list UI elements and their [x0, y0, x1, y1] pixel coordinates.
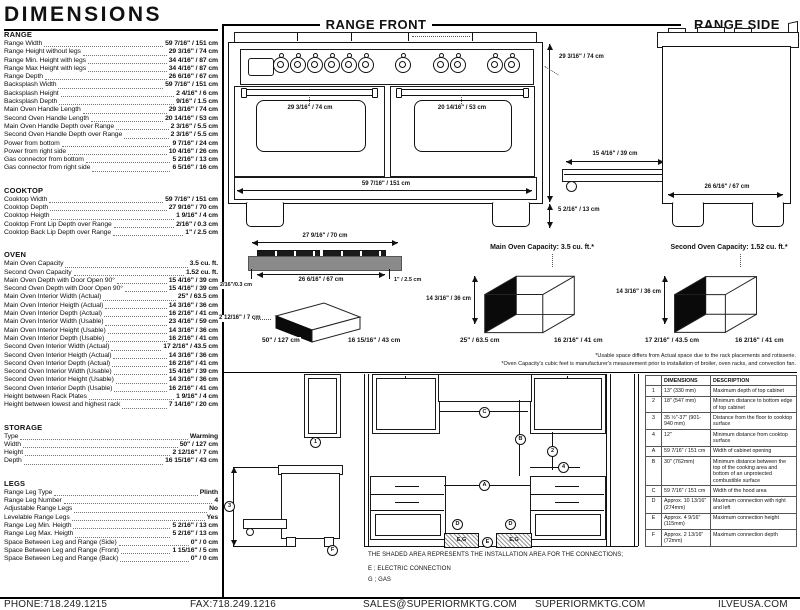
spec-rows: Type Warming Width 50" / 127 cm Height 2… [4, 433, 218, 466]
spec-value: 34 4/16" / 87 cm [169, 57, 218, 65]
second-capacity-height-dim: 14 3/16" / 36 cm [610, 289, 662, 296]
spec-value: Yes [207, 514, 218, 522]
callout-d: D [505, 519, 516, 530]
cooktop-slab [248, 256, 402, 271]
wall-line [368, 374, 369, 546]
spec-row: Range Width 59 7/16" / 151 cm [4, 40, 218, 48]
dimensions-sheet: DIMENSIONS RANGE Range Width 59 7/16" / … [0, 0, 800, 610]
row-dimension: 12" [662, 430, 711, 447]
drawer-width-dim: 50" / 127 cm [261, 337, 301, 344]
spec-row: Range Max Height with legs 34 4/16" / 87… [4, 65, 218, 73]
row-description: Minimum distance between the top of the … [711, 457, 797, 486]
row-ref: A [646, 446, 662, 456]
range-leg [752, 202, 784, 227]
spec-label: Range Leg Type [4, 489, 52, 497]
spec-row: Main Oven Interior Heigth (Actual) 14 3/… [4, 302, 218, 310]
row-description: Maximum connection depth [711, 530, 797, 547]
dotted-leader [23, 447, 178, 448]
spec-label: Main Oven Interior Height (Usable) [4, 327, 106, 335]
dotted-leader [106, 341, 167, 342]
spec-label: Main Oven Interior Depth (Usable) [4, 335, 104, 343]
spec-row: Gas connector from right side 6 5/16" / … [4, 164, 218, 172]
row-description: Minimum distance to bottom edge of top c… [711, 396, 797, 413]
spec-label: Gas connector from bottom [4, 156, 84, 164]
cabinet-door-panel [308, 378, 337, 434]
spec-value: 14 3/16" / 36 cm [169, 352, 218, 360]
capacity-height-arrow [474, 276, 475, 324]
spec-row: Second Oven Depth with Door Open 90° 15 … [4, 285, 218, 293]
leader-dotted [740, 254, 741, 267]
cabinet-door-panel [376, 378, 436, 430]
second-capacity-depth-dim: 16 2/16" / 41 cm [734, 337, 785, 344]
spec-value: 1 15/16" / 5 cm [172, 547, 218, 555]
leg-height-arrow [549, 204, 550, 228]
dotted-leader [54, 495, 197, 496]
depth-arrow [668, 194, 783, 195]
leader-dashed [544, 66, 558, 75]
dotted-leader [73, 528, 170, 529]
dotted-leader [113, 235, 183, 236]
spec-label: Second Oven Capacity [4, 269, 72, 277]
dotted-leader [114, 391, 166, 392]
spec-label: Height between lowest and highest rack [4, 401, 120, 409]
burner-knob [341, 57, 357, 73]
row-description: Maximum connection with right and left [711, 496, 797, 513]
dotted-leader [116, 129, 169, 130]
griddle-dotted [412, 36, 470, 37]
dotted-leader [75, 537, 170, 538]
spec-row: Levelable Range Legs Yes [4, 514, 218, 522]
burner-knob [307, 57, 323, 73]
shelf-line [564, 174, 666, 175]
spec-row: Range Leg Number 4 [4, 497, 218, 505]
spec-label: Main Oven Capacity [4, 260, 63, 268]
spec-value: 34 4/16" / 87 cm [169, 65, 218, 73]
installation-note: THE SHADED AREA REPRESENTS THE INSTALLAT… [368, 552, 623, 558]
spec-label: Main Oven Interior Depth (Actual) [4, 310, 102, 318]
dotted-leader [105, 325, 166, 326]
spec-label: Second Oven Handle Depth over Range [4, 131, 122, 139]
footnote-2: *Oven Capacity's cubic feet is manufactu… [406, 361, 796, 369]
footer-email: SALES@SUPERIORMKTG.COM [363, 599, 517, 610]
open-door-shelf [562, 169, 670, 182]
dotted-leader [103, 300, 176, 301]
spec-row: Main Oven Interior Depth (Usable) 16 2/1… [4, 335, 218, 343]
spec-label: Second Oven Depth with Door Open 90° [4, 285, 123, 293]
spec-row: Power from bottom 9 7/16" / 24 cm [4, 140, 218, 148]
section-heading: COOKTOP [4, 186, 218, 195]
spec-row: Cooktop Back Lip Depth over Range 1" / 2… [4, 229, 218, 237]
callout-c: C [479, 407, 490, 418]
spec-row: Main Oven Handle Length 29 3/16" / 74 cm [4, 106, 218, 114]
oven-knob [487, 57, 503, 73]
row-dimension: Approx. 2 13/16" (72mm) [662, 530, 711, 547]
caster-wheel [566, 181, 577, 192]
spec-row: Width 50" / 127 cm [4, 441, 218, 449]
spec-label: Second Oven Interior Width (Usable) [4, 368, 112, 376]
spec-label: Depth [4, 457, 22, 465]
dotted-leader [92, 171, 170, 172]
row-description: Maximum depth of top cabinet [711, 386, 797, 396]
spec-row: Power from right side 10 4/16" / 26 cm [4, 148, 218, 156]
row-ref: 4 [646, 430, 662, 447]
installation-table: DIMENSIONS DESCRIPTION 1 13" (330 mm) Ma… [645, 375, 797, 547]
spec-row: Second Oven Interior Heigth (Actual) 14 … [4, 352, 218, 360]
spec-row: Range Depth 26 6/16" / 67 cm [4, 73, 218, 81]
spec-row: Second Oven Interior Depth (Usable) 16 2… [4, 385, 218, 393]
oven-knob [395, 57, 411, 73]
spec-label: Power from right side [4, 148, 66, 156]
legend-electric: E ; ELECTRIC CONNECTION [368, 566, 451, 572]
dotted-leader [51, 219, 174, 220]
spec-label: Backsplash Width [4, 81, 56, 89]
connection-area-left: E,G [444, 533, 479, 548]
cabinet-door-panel [535, 514, 601, 536]
row-description: Width of the hood area [711, 486, 797, 496]
spec-value: 14 3/16" / 36 cm [169, 302, 218, 310]
second-capacity-title: Second Oven Capacity: 1.52 cu. ft.* [670, 244, 787, 251]
dotted-leader [72, 520, 205, 521]
dotted-leader [83, 55, 167, 56]
drawer-handle [395, 486, 419, 487]
leader-dotted [552, 254, 553, 267]
spec-value: 26 6/16" / 67 cm [169, 73, 218, 81]
spec-value: 2 12/16" / 7 cm [172, 449, 218, 457]
spec-label: Main Oven Depth with Door Open 90° [4, 277, 115, 285]
spec-value: 29 3/16" / 74 cm [169, 106, 218, 114]
spec-value: 16 15/16" / 43 cm [165, 457, 218, 465]
section-heading: STORAGE [4, 423, 218, 432]
spec-value: 16 2/16" / 41 cm [169, 310, 218, 318]
ref-header [646, 376, 662, 386]
dotted-leader [120, 561, 189, 562]
range-leg [246, 202, 284, 227]
dotted-leader [125, 291, 167, 292]
spec-value: 50" / 127 cm [180, 441, 218, 449]
burner-knob [358, 57, 374, 73]
spec-row: Main Oven Interior Depth (Actual) 16 2/1… [4, 310, 218, 318]
dotted-leader [45, 79, 167, 80]
table-row: 2 18" (547 mm) Minimum distance to botto… [646, 396, 797, 413]
spec-label: Second Oven Interior Width (Actual) [4, 343, 109, 351]
drawer-line [530, 494, 604, 495]
spec-value: 59 7/16" / 151 cm [165, 196, 218, 204]
spec-row: Backsplash Depth 9/16" / 1.5 cm [4, 98, 218, 106]
callout-f: F [327, 545, 338, 556]
dotted-leader [86, 162, 171, 163]
dotted-leader [83, 113, 167, 114]
row-ref: 1 [646, 386, 662, 396]
spec-value: 14 3/16" / 36 cm [169, 327, 218, 335]
spec-value: 15 4/16" / 39 cm [169, 368, 218, 376]
drawer-handle [555, 486, 579, 487]
spec-row: Space Between Leg and Range (Front) 1 15… [4, 547, 218, 555]
callout-b: B [515, 434, 526, 445]
leader-dotted [461, 95, 462, 104]
dotted-leader [49, 202, 163, 203]
spec-panel: RANGE Range Width 59 7/16" / 151 cm Rang… [4, 30, 218, 576]
spec-value: 1" / 2.5 cm [185, 229, 218, 237]
spec-rows: Cooktop Width 59 7/16" / 151 cm Cooktop … [4, 196, 218, 237]
wall-line [638, 374, 639, 546]
dotted-leader [112, 366, 167, 367]
spec-row: Main Oven Interior Width (Usable) 23 4/1… [4, 318, 218, 326]
spec-value: 2 3/16" / 5.5 cm [171, 123, 218, 131]
hood-cabinet [438, 374, 532, 402]
dotted-leader [121, 553, 171, 554]
dotted-leader [61, 96, 175, 97]
spec-row: Adjustable Range Legs No [4, 505, 218, 513]
spec-row: Cooktop Front Lip Depth over Range 2/16"… [4, 221, 218, 229]
spec-row: Range Min. Height with legs 34 4/16" / 8… [4, 57, 218, 65]
spec-value: 16 2/16" / 41 cm [169, 360, 218, 368]
drawer-line [370, 510, 444, 511]
second-handle-dim: 20 14/16" / 53 cm [437, 105, 487, 112]
oven-knob [504, 57, 520, 73]
cabinet-door-panel [534, 378, 602, 430]
spec-label: Main Oven Interior Width (Usable) [4, 318, 103, 326]
connection-area-right: E,G [496, 533, 532, 548]
spec-label: Cooktop Width [4, 196, 47, 204]
back-lip-dim: 1" / 2.5 cm [393, 277, 422, 284]
dotted-leader [88, 71, 167, 72]
spec-row: Second Oven Interior Height (Usable) 14 … [4, 376, 218, 384]
spec-row: Range Leg Min. Heigth 5 2/16" / 13 cm [4, 522, 218, 530]
spec-label: Space Between Leg and Range (Front) [4, 547, 119, 555]
row-dimension: 59 7/16" / 151 cm [662, 446, 711, 456]
spec-row: Space Between Leg and Range (Side) 0" / … [4, 539, 218, 547]
dotted-leader [65, 267, 187, 268]
spec-value: 2 4/16" / 6 cm [176, 90, 218, 98]
dotted-leader [124, 138, 168, 139]
dotted-leader [74, 275, 184, 276]
spec-label: Range Min. Height with legs [4, 57, 86, 65]
dotted-leader [24, 464, 163, 465]
dotted-leader [64, 503, 213, 504]
range-leg [492, 202, 530, 227]
spec-value: 16 2/16" / 41 cm [169, 385, 218, 393]
row-ref: D [646, 496, 662, 513]
wall-line [634, 374, 635, 546]
front-lip-dim: 2/16"/0.3 cm [219, 282, 253, 289]
clearance-line [530, 467, 580, 468]
spec-value: 0" / 0 cm [191, 555, 218, 563]
spec-section-storage: STORAGE Type Warming Width 50" / 127 cm … [4, 423, 218, 466]
spec-value: 25" / 63.5 cm [178, 293, 218, 301]
display-window [248, 58, 274, 76]
spec-row: Gas connector from bottom 5 2/16" / 13 c… [4, 156, 218, 164]
drawer-depth-dim: 16 15/16" / 43 cm [347, 337, 401, 344]
drawer-line [370, 494, 444, 495]
dotted-leader [117, 283, 167, 284]
table-row: 1 13" (330 mm) Maximum depth of top cabi… [646, 386, 797, 396]
door-open-dim: 15 4/16" / 39 cm [592, 151, 639, 158]
spec-value: 2 3/16" / 5.5 cm [171, 131, 218, 139]
row-description: Minimum distance from cooktop surface [711, 430, 797, 447]
row-ref: 2 [646, 396, 662, 413]
grate-tick [472, 33, 473, 41]
spec-label: Levelable Range Legs [4, 514, 70, 522]
spec-row: Second Oven Handle Depth over Range 2 3/… [4, 131, 218, 139]
grate-tick [408, 33, 409, 41]
spec-row: Main Oven Handle Depth over Range 2 3/16… [4, 123, 218, 131]
row-description: Maximum connection height [711, 513, 797, 530]
spec-value: 9/16" / 1.5 cm [176, 98, 218, 106]
dotted-leader [111, 350, 161, 351]
range-width-dim: 59 7/16" / 151 cm [361, 181, 411, 188]
spec-rows: Range Leg Type Plinth Range Leg Number 4… [4, 489, 218, 564]
table-row: B 30" (762mm) Minimum distance between t… [646, 457, 797, 486]
dotted-leader [20, 439, 188, 440]
spec-label: Power from bottom [4, 140, 60, 148]
spec-row: Backsplash Height 2 4/16" / 6 cm [4, 90, 218, 98]
spec-label: Height [4, 449, 23, 457]
spec-label: Space Between Leg and Range (Back) [4, 555, 118, 563]
spec-label: Range Width [4, 40, 42, 48]
dotted-leader [105, 308, 166, 309]
mini-caster [246, 528, 254, 536]
dotted-leader [114, 227, 174, 228]
spec-row: Cooktop Heigth 1 9/16" / 4 cm [4, 212, 218, 220]
spec-label: Main Oven Handle Depth over Range [4, 123, 114, 131]
spec-value: 6 5/16" / 16 cm [172, 164, 218, 172]
dotted-leader [68, 154, 167, 155]
spec-value: 27 9/16" / 70 cm [169, 204, 218, 212]
row-ref: 3 [646, 413, 662, 430]
range-leg [672, 202, 704, 227]
spec-value: 14 3/16" / 36 cm [169, 376, 218, 384]
spec-row: Main Oven Depth with Door Open 90° 15 4/… [4, 277, 218, 285]
main-capacity-depth-dim: 16 2/16" / 41 cm [553, 337, 604, 344]
spec-label: Cooktop Depth [4, 204, 48, 212]
spec-section-oven: OVEN Main Oven Capacity 3.5 cu. ft. Seco… [4, 250, 218, 409]
spec-value: Plinth [200, 489, 218, 497]
spec-row: Second Oven Interior Width (Actual) 17 2… [4, 343, 218, 351]
spec-value: Warming [190, 433, 218, 441]
spec-label: Height between Rack Plates [4, 393, 87, 401]
dotted-leader [122, 408, 166, 409]
spec-section-legs: LEGS Range Leg Type Plinth Range Leg Num… [4, 479, 218, 564]
dotted-leader [25, 455, 170, 456]
callout-4: 4 [558, 462, 569, 473]
spec-label: Type [4, 433, 18, 441]
vertical-divider [222, 24, 224, 597]
second-capacity-width-dim: 17 2/16" / 43.5 cm [644, 337, 700, 344]
spec-label: Backsplash Height [4, 90, 59, 98]
dotted-leader [114, 374, 167, 375]
drawer-handle [555, 502, 579, 503]
table-row: D Approx. 10 13/16" (274mm) Maximum conn… [646, 496, 797, 513]
callout-d: D [452, 519, 463, 530]
description-header: DESCRIPTION [711, 376, 797, 386]
spec-label: Range Leg Min. Heigth [4, 522, 71, 530]
spec-row: Height between lowest and highest rack 7… [4, 401, 218, 409]
spec-value: 7 14/16" / 20 cm [169, 401, 218, 409]
row-dimension: 30" (762mm) [662, 457, 711, 486]
spec-row: Main Oven Interior Width (Actual) 25" / … [4, 293, 218, 301]
row-ref: F [646, 530, 662, 547]
table-row: F Approx. 2 13/16" (72mm) Maximum connec… [646, 530, 797, 547]
dotted-leader [104, 316, 167, 317]
spec-label: Range Height without legs [4, 48, 81, 56]
spec-row: Cooktop Width 59 7/16" / 151 cm [4, 196, 218, 204]
section-heading: OVEN [4, 250, 218, 259]
grate-tick [351, 33, 352, 41]
spec-label: Range Leg Max. Heigth [4, 530, 73, 538]
spec-value: 10 4/16" / 26 cm [169, 148, 218, 156]
footer-site2: ILVEUSA.COM [718, 599, 788, 610]
spec-value: 1 9/16" / 4 cm [176, 212, 218, 220]
spec-row: Space Between Leg and Range (Back) 0" / … [4, 555, 218, 563]
inner-width-dim: 26 6/16" / 67 cm [298, 277, 345, 284]
spec-label: Second Oven Interior Heigth (Actual) [4, 352, 111, 360]
spec-value: 15 4/16" / 39 cm [169, 285, 218, 293]
dotted-leader [116, 383, 167, 384]
spec-label: Main Oven Handle Length [4, 106, 81, 114]
spec-label: Main Oven Interior Heigth (Actual) [4, 302, 103, 310]
page-title: DIMENSIONS [4, 3, 218, 31]
spec-label: Second Oven Interior Depth (Actual) [4, 360, 110, 368]
spec-value: 16 2/16" / 41 cm [169, 335, 218, 343]
wall-line [606, 374, 607, 546]
range-height-dim: 29 3/16" / 74 cm [558, 54, 605, 61]
dotted-leader [44, 46, 163, 47]
spec-label: Backsplash Depth [4, 98, 57, 106]
spec-label: Range Depth [4, 73, 43, 81]
spec-value: 3.5 cu. ft. [190, 260, 218, 268]
second-capacity-box [668, 268, 768, 336]
spec-label: Second Oven Handle Length [4, 115, 89, 123]
spec-row: Main Oven Interior Height (Usable) 14 3/… [4, 327, 218, 335]
spec-label: Second Oven Interior Depth (Usable) [4, 385, 112, 393]
burner-knob [273, 57, 289, 73]
burner-knob [290, 57, 306, 73]
width-arrow [237, 190, 532, 191]
spec-row: Cooktop Depth 27 9/16" / 70 cm [4, 204, 218, 212]
main-handle-dim: 29 3/16" / 74 cm [287, 105, 334, 112]
spec-label: Cooktop Heigth [4, 212, 49, 220]
dim-tick [233, 546, 293, 547]
spec-section-range: RANGE Range Width 59 7/16" / 151 cm Rang… [4, 30, 218, 173]
callout-1: 1 [310, 437, 321, 448]
dimensions-header: DIMENSIONS [662, 376, 711, 386]
door-open-arrow [566, 161, 664, 162]
second-oven-handle [398, 89, 527, 96]
dotted-leader [91, 121, 163, 122]
row-dimension: 18" (547 mm) [662, 396, 711, 413]
main-capacity-height-dim: 14 3/16" / 36 cm [420, 296, 472, 303]
footer-phone: PHONE:718.249.1215 [4, 599, 107, 610]
spec-row: Depth 16 15/16" / 43 cm [4, 457, 218, 465]
spec-value: 5 2/16" / 13 cm [172, 530, 218, 538]
spec-label: Range Max Height with legs [4, 65, 86, 73]
spec-label: Second Oven Interior Height (Usable) [4, 376, 114, 384]
spec-value: 9 7/16" / 24 cm [172, 140, 218, 148]
oven-knob [433, 57, 449, 73]
spec-row: Second Oven Interior Depth (Actual) 16 2… [4, 360, 218, 368]
row-description: Distance from the floor to cooktop surfa… [711, 413, 797, 430]
spec-label: Cooktop Front Lip Depth over Range [4, 221, 112, 229]
legend-gas: G ; GAS [368, 577, 391, 583]
spec-row: Type Warming [4, 433, 218, 441]
spec-row: Second Oven Capacity 1.52 cu. ft. [4, 269, 218, 277]
spec-value: 59 7/16" / 151 cm [165, 81, 218, 89]
oven-knob [450, 57, 466, 73]
spec-value: 17 2/16" / 43.5 cm [163, 343, 218, 351]
row-ref: B [646, 457, 662, 486]
cooktop-width-arrow [252, 242, 398, 243]
spec-label: Gas connector from right side [4, 164, 90, 172]
